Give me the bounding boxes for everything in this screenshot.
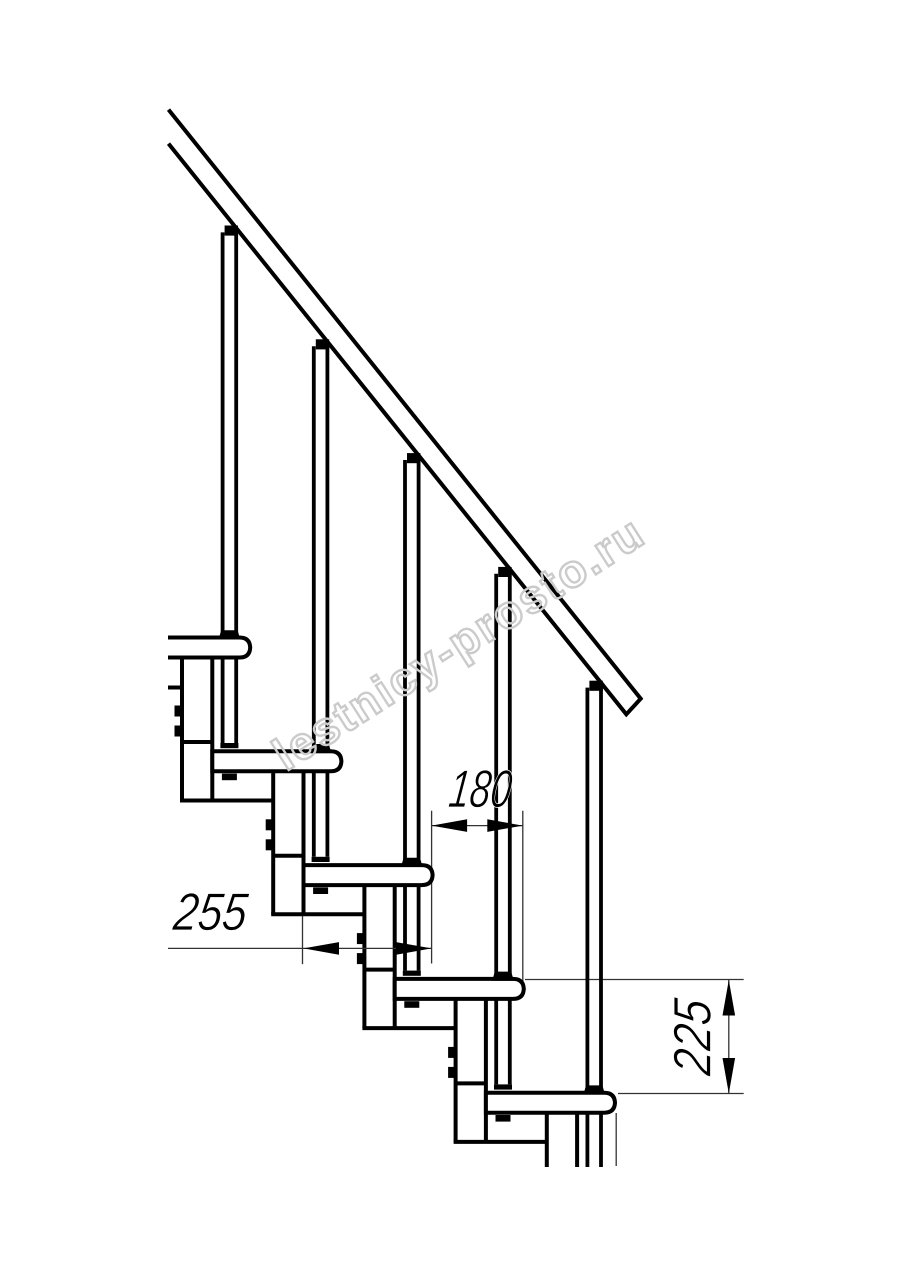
svg-text:255: 255 xyxy=(170,883,251,942)
svg-text:225: 225 xyxy=(664,995,723,1078)
svg-text:180: 180 xyxy=(446,760,516,819)
